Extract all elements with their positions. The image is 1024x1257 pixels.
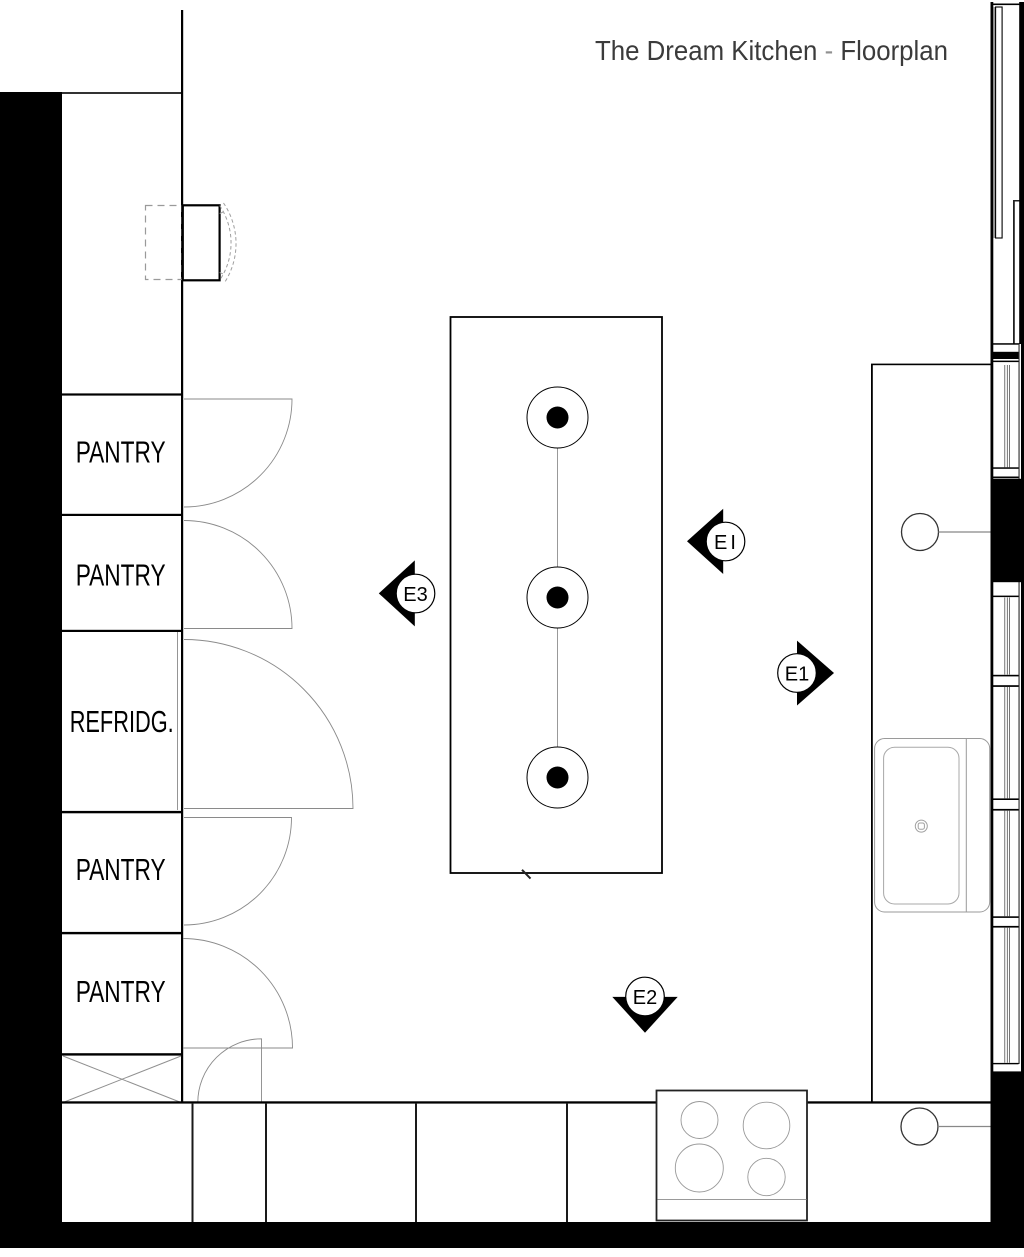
svg-text:PANTRY: PANTRY	[76, 558, 166, 593]
svg-text:PANTRY: PANTRY	[76, 435, 166, 470]
svg-text:PANTRY: PANTRY	[76, 852, 166, 887]
svg-text:E3: E3	[403, 584, 427, 606]
svg-text:The Dream Kitchen - Floorplan: The Dream Kitchen - Floorplan	[595, 35, 948, 66]
svg-text:PANTRY: PANTRY	[76, 974, 166, 1009]
svg-text:REFRIDG.: REFRIDG.	[70, 704, 174, 739]
svg-text:E1: E1	[785, 664, 809, 686]
svg-text:EI: EI	[714, 532, 739, 554]
svg-text:E2: E2	[633, 987, 657, 1009]
